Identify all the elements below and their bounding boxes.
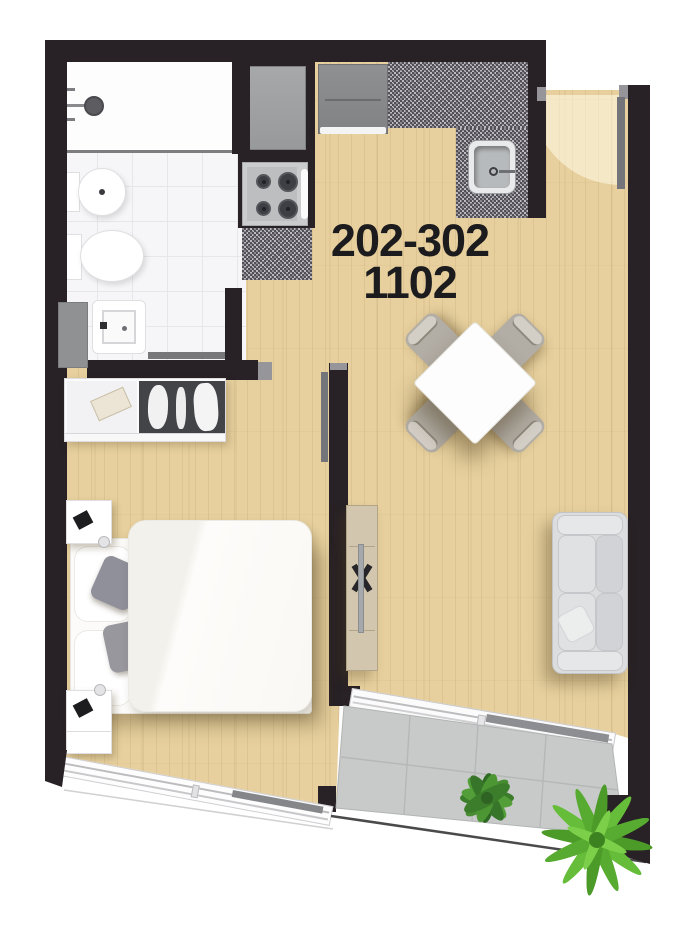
entry-cap-left (537, 87, 546, 101)
vanity-bowl (102, 310, 136, 344)
bed-duvet (128, 520, 312, 712)
wardrobe-closet (139, 381, 225, 433)
nightstand-icon (66, 690, 112, 754)
vanity-drain (122, 326, 127, 331)
wall-bath-right (232, 62, 250, 154)
bidet-drain (99, 189, 105, 195)
tv-console-icon (346, 505, 378, 671)
balcony-plant-icon (541, 784, 654, 897)
sofa-back-cushion (596, 535, 623, 593)
wardrobe-shelf-lip (65, 433, 225, 441)
burner (256, 201, 271, 216)
bed-knob (94, 684, 106, 696)
nightstand-item (73, 698, 94, 718)
wall-bath-lower-right (225, 288, 242, 362)
wall-cap-divider-top (330, 363, 347, 370)
stove-icon (242, 162, 308, 226)
towel-rail-icon (148, 352, 236, 359)
kitchen-sink-icon (468, 140, 516, 194)
wall-cap-bath (258, 362, 272, 380)
entry-door-icon (617, 97, 625, 189)
wall-top (45, 40, 546, 62)
unit-label-line1: 202-302 (318, 220, 502, 262)
fridge-icon (246, 66, 306, 150)
balcony-railing (331, 816, 646, 862)
granite-counter-icon (388, 62, 528, 128)
cabinet-lip (320, 127, 386, 134)
bed-knob (98, 536, 110, 548)
bathroom-door-panel (58, 302, 88, 368)
tv-screen (358, 544, 364, 633)
shower-head-icon (84, 96, 104, 116)
sofa-armrest (557, 651, 623, 671)
sofa-back-cushion (596, 593, 623, 651)
sink-faucet-stub (499, 170, 515, 173)
unit-label: 202-302 1102 (318, 220, 502, 304)
balcony-tile-joint (540, 735, 546, 828)
wall-bath-bottom (87, 360, 258, 380)
sofa-icon (552, 512, 628, 674)
wall-right-corner (606, 795, 650, 864)
toilet-icon (80, 230, 144, 282)
sofa-seat (558, 535, 596, 593)
hanging-garment (147, 385, 169, 430)
nightstand-item (73, 510, 94, 530)
interior-door-icon (321, 372, 328, 462)
granite-counter-icon (242, 228, 312, 280)
balcony-tile-joint (341, 757, 618, 790)
wall-right (628, 85, 650, 797)
balcony-tile-joint (404, 715, 410, 815)
wall-kitchen-divider (528, 40, 546, 218)
hanging-garment (176, 387, 186, 429)
burner (256, 174, 271, 189)
floor-plan: 202-302 1102 (0, 0, 697, 930)
oven-handle (301, 169, 308, 219)
hanging-garment (192, 382, 219, 432)
balcony-plant-icon (460, 771, 514, 824)
sofa-armrest (557, 515, 623, 535)
nightstand-divider (67, 731, 111, 732)
sink-faucet (489, 167, 498, 176)
balcony-tile-joint (472, 725, 478, 821)
unit-label-line2: 1102 (318, 262, 502, 304)
burner (278, 172, 298, 192)
vanity-faucet (100, 322, 107, 329)
cabinet-line (325, 99, 381, 101)
wardrobe-icon (64, 378, 226, 442)
kitchen-cabinet (318, 64, 388, 134)
burner (278, 199, 298, 219)
